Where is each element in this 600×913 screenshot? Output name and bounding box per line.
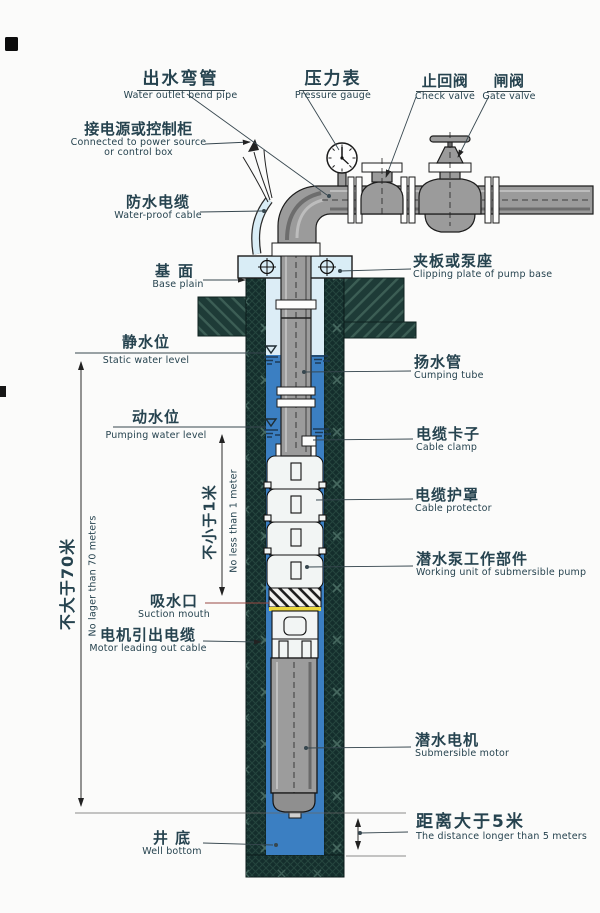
pump-working-unit bbox=[264, 444, 326, 658]
label-static-water-level: 静水位 Static water level bbox=[84, 334, 208, 366]
label-dim1m-en: No less than 1 meter bbox=[229, 469, 240, 573]
label-pumping-tube: 扬水管 Cumping tube bbox=[414, 354, 594, 381]
diagram-page: 出水弯管 Water outlet bend pipe 压力表 Pressure… bbox=[0, 0, 600, 913]
label-submersible-motor: 潜水电机 Submersible motor bbox=[415, 732, 595, 759]
label-power-source: 接电源或控制柜 Connected to power source or con… bbox=[66, 121, 211, 159]
riser-pipe-figure bbox=[276, 250, 316, 456]
label-water-outlet-zh: 出水弯管 bbox=[137, 70, 225, 91]
label-water-outlet-bend-pipe: 出水弯管 Water outlet bend pipe bbox=[108, 70, 253, 102]
label-clipping-plate: 夹板或泵座 Clipping plate of pump base bbox=[413, 253, 595, 280]
submersible-motor-figure bbox=[271, 658, 317, 818]
label-well-bottom: 井 底 Well bottom bbox=[110, 830, 234, 857]
scan-marks bbox=[0, 37, 18, 397]
label-dim1m-zh: 不小于1米 bbox=[199, 484, 220, 559]
label-water-outlet-en: Water outlet bend pipe bbox=[108, 91, 253, 102]
label-motor-leading-cable: 电机引出电缆 Motor leading out cable bbox=[86, 627, 210, 654]
label-pumping-water-level: 动水位 Pumping water level bbox=[94, 409, 218, 441]
label-dim70-en: No lager than 70 meters bbox=[88, 515, 99, 636]
label-pressure-gauge: 压力表 Pressure gauge bbox=[272, 70, 394, 102]
label-distance-5m: 距离大于5米 The distance longer than 5 meters bbox=[416, 813, 600, 843]
check-valve-figure bbox=[361, 158, 403, 218]
label-base-plain: 基面 Base plain bbox=[126, 263, 230, 290]
label-suction-mouth: 吸水口 Suction mouth bbox=[116, 593, 232, 620]
label-dim70-zh: 不大于70米 bbox=[54, 538, 78, 630]
label-cable-protector: 电缆护罩 Cable protector bbox=[415, 487, 595, 514]
label-working-unit: 潜水泵工作部件 Working unit of submersible pump bbox=[416, 551, 600, 578]
label-gate-valve: 闸阀 Gate valve bbox=[462, 72, 556, 102]
label-waterproof-cable: 防水电缆 Water-proof cable bbox=[96, 194, 220, 221]
waterproof-cable-figure bbox=[243, 139, 272, 254]
label-cable-clamp: 电缆卡子 Cable clamp bbox=[416, 426, 596, 453]
gate-valve-figure bbox=[419, 132, 481, 232]
